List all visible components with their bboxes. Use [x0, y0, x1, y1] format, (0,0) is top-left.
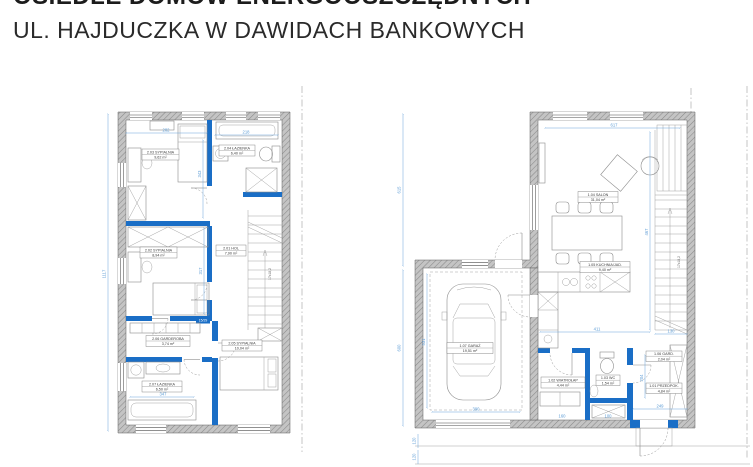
svg-text:6,50 m²: 6,50 m² — [156, 388, 169, 392]
room-label: 2.06 GARDEROBA 3,74 m² — [146, 336, 190, 347]
svg-text:31,04 m²: 31,04 m² — [591, 198, 606, 202]
furniture-upper — [128, 121, 282, 420]
wardrobe-x — [128, 186, 146, 220]
room-label: 1.01 PRZEDPOK. 4,84 m² — [646, 383, 682, 394]
svg-text:160: 160 — [559, 414, 567, 419]
svg-text:2.07 ŁAZIENKA: 2.07 ŁAZIENKA — [149, 382, 176, 386]
svg-text:4,84 m²: 4,84 m² — [658, 389, 671, 393]
room-label: 2.02 SYPIALNIA 8,94 m² — [140, 247, 177, 258]
svg-text:9,40 m²: 9,40 m² — [599, 268, 612, 272]
stairs-note: 17x18,2 — [677, 256, 681, 268]
svg-text:7,90 m²: 7,90 m² — [225, 252, 238, 256]
shower — [246, 168, 277, 192]
svg-text:19,51 m²: 19,51 m² — [463, 349, 478, 353]
svg-text:6,40 m²: 6,40 m² — [231, 152, 244, 156]
room-labels-ground: 1.04 SALON 31,04 m² 1.05 KUCHNIA/JAD. 9,… — [447, 192, 682, 394]
svg-text:282: 282 — [163, 128, 171, 133]
svg-text:2.05 SYPIALNIA: 2.05 SYPIALNIA — [228, 341, 256, 345]
floor-plan-sheet: OSIEDLE DOMÓW ENERGOOSZCZĘDNYCH UL. HAJD… — [0, 0, 753, 467]
svg-text:617: 617 — [611, 123, 619, 128]
svg-text:390: 390 — [473, 407, 481, 412]
closet-band — [128, 227, 208, 247]
svg-text:600: 600 — [397, 344, 402, 352]
svg-text:1117: 1117 — [102, 269, 107, 278]
svg-text:204: 204 — [639, 374, 644, 382]
garage-area — [430, 272, 522, 410]
svg-text:2.04 ŁAZIENKA: 2.04 ŁAZIENKA — [224, 146, 251, 150]
svg-text:2.03 SYPIALNIA: 2.03 SYPIALNIA — [147, 150, 175, 154]
svg-text:100: 100 — [605, 414, 613, 419]
svg-text:15/29: 15/29 — [199, 319, 208, 323]
svg-text:2.02 SYPIALNIA: 2.02 SYPIALNIA — [145, 248, 173, 252]
svg-text:218: 218 — [243, 130, 251, 135]
ground-floor-plan: 17x18,2 — [397, 112, 751, 464]
svg-text:3,74 m²: 3,74 m² — [162, 342, 175, 346]
svg-text:615: 615 — [397, 186, 402, 194]
svg-text:4,44 m²: 4,44 m² — [557, 384, 570, 388]
svg-text:1.03 WC: 1.03 WC — [601, 376, 616, 380]
room-label: 2.04 ŁAZIENKA 6,40 m² — [219, 145, 255, 156]
wc-fixtures — [590, 352, 614, 397]
room-label: 1.07 GARAŻ 19,51 m² — [447, 343, 493, 354]
svg-text:1.02 WIATROŁAP: 1.02 WIATROŁAP — [548, 378, 578, 382]
svg-text:8,94 m²: 8,94 m² — [152, 254, 165, 258]
wardrobe-br — [258, 328, 282, 341]
svg-text:343: 343 — [197, 170, 202, 178]
room-label: 2.05 SYPIALNIA 10,04 m² — [222, 340, 262, 351]
svg-text:1.06 GARD.: 1.06 GARD. — [654, 352, 674, 356]
svg-text:120: 120 — [412, 437, 417, 445]
room-label: 1.04 SALON 31,04 m² — [578, 192, 618, 203]
svg-text:317: 317 — [198, 267, 203, 275]
svg-text:531: 531 — [421, 338, 426, 346]
stairs-note: 17x18,2 — [268, 268, 272, 280]
floor-plans-drawing: 15/29 17x18,2 — [0, 0, 753, 467]
svg-text:249: 249 — [657, 404, 665, 409]
svg-text:10,04 m²: 10,04 m² — [235, 347, 250, 351]
svg-text:1.07 GARAŻ: 1.07 GARAŻ — [460, 343, 482, 348]
svg-text:1.04 SALON: 1.04 SALON — [588, 193, 609, 197]
room-label: 1.03 WC 1,54 m² — [596, 375, 620, 386]
garage-house-wall — [530, 268, 538, 420]
room-label: 1.05 KUCHNIA/JAD. 9,40 m² — [580, 262, 630, 273]
room-label: 2.01 HOL 7,90 m² — [216, 245, 246, 256]
svg-text:1.05 KUCHNIA/JAD.: 1.05 KUCHNIA/JAD. — [588, 263, 622, 267]
svg-text:2.06 GARDEROBA: 2.06 GARDEROBA — [152, 337, 184, 341]
wall-tag: 15/29 — [196, 317, 210, 324]
driveway-lines — [415, 446, 750, 464]
svg-text:2,04 m²: 2,04 m² — [658, 357, 671, 361]
room-label: 1.02 WIATROŁAP 4,44 m² — [541, 377, 585, 388]
upper-floor-plan: 15/29 17x18,2 — [102, 112, 291, 433]
svg-text:130: 130 — [668, 329, 676, 334]
svg-text:1,54 m²: 1,54 m² — [602, 381, 615, 385]
svg-text:120: 120 — [412, 453, 417, 461]
car — [442, 284, 506, 400]
svg-text:467: 467 — [644, 228, 649, 236]
stairs-ground: 17x18,2 — [655, 125, 687, 334]
room-label: 2.03 SYPIALNIA 9,62 m² — [142, 149, 179, 160]
svg-text:1.01 PRZEDPOK.: 1.01 PRZEDPOK. — [649, 384, 679, 388]
svg-text:2.01 HOL: 2.01 HOL — [223, 246, 239, 250]
dimensions-ground: 617 615 600 531 390 411 130 467 204 249 — [397, 114, 688, 464]
stairs-upper: 17x18,2 — [248, 210, 282, 330]
svg-text:411: 411 — [594, 327, 601, 332]
room-label: 2.07 ŁAZIENKA 6,50 m² — [142, 381, 182, 392]
svg-text:347: 347 — [160, 392, 168, 397]
svg-text:9,62 m²: 9,62 m² — [154, 156, 167, 160]
room-label: 1.06 GARD. 2,04 m² — [646, 351, 682, 362]
